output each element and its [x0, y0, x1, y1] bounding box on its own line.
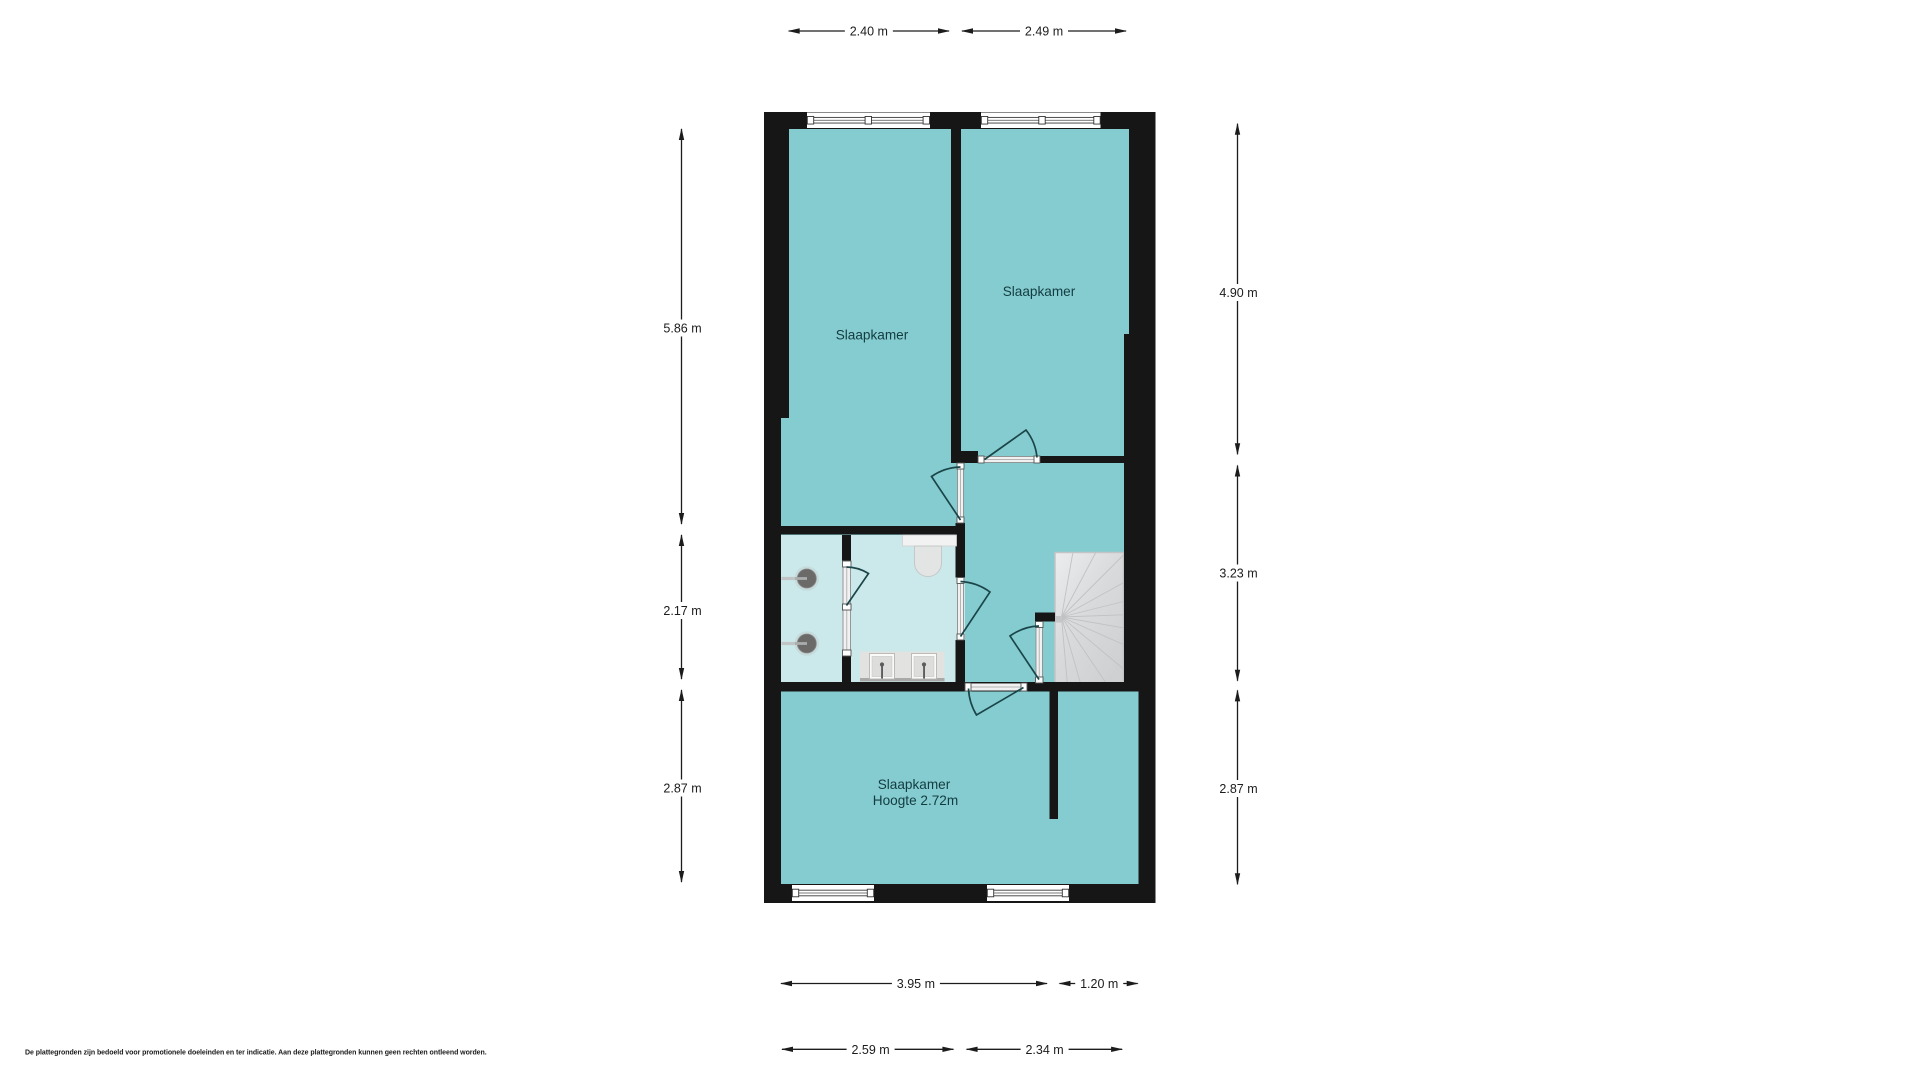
svg-text:2.87 m: 2.87 m: [663, 782, 701, 796]
svg-text:2.40 m: 2.40 m: [850, 25, 888, 39]
svg-text:2.17 m: 2.17 m: [663, 604, 701, 618]
svg-text:3.23 m: 3.23 m: [1219, 567, 1257, 581]
svg-text:3.95 m: 3.95 m: [897, 977, 935, 991]
svg-text:De plattegronden zijn bedoeld: De plattegronden zijn bedoeld voor promo…: [25, 1050, 487, 1057]
svg-text:Slaapkamer: Slaapkamer: [1003, 284, 1076, 299]
svg-text:Slaapkamer: Slaapkamer: [878, 777, 951, 792]
svg-text:2.87 m: 2.87 m: [1219, 782, 1257, 796]
svg-text:Slaapkamer: Slaapkamer: [836, 328, 909, 343]
svg-text:2.34 m: 2.34 m: [1025, 1043, 1063, 1057]
svg-text:1.20 m: 1.20 m: [1080, 977, 1118, 991]
svg-text:2.59 m: 2.59 m: [851, 1043, 889, 1057]
svg-text:2.49 m: 2.49 m: [1025, 25, 1063, 39]
svg-text:5.86 m: 5.86 m: [663, 322, 701, 336]
svg-text:4.90 m: 4.90 m: [1219, 286, 1257, 300]
svg-text:Hoogte 2.72m: Hoogte 2.72m: [873, 793, 958, 808]
